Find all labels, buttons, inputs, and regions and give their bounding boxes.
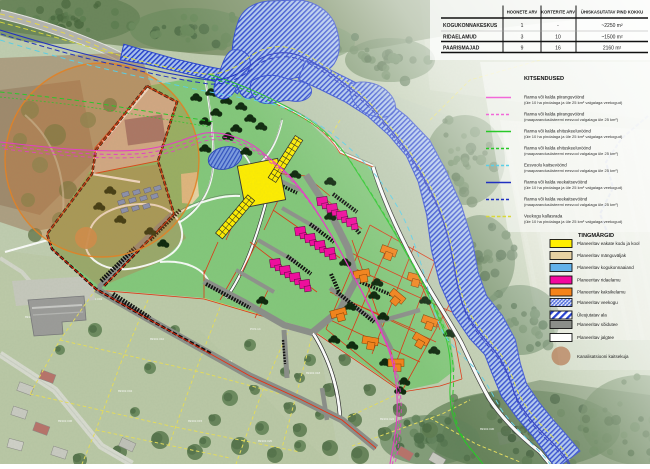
- svg-text:(üle 10 ha pindalaga ja üle 25: (üle 10 ha pindalaga ja üle 25 km² valga…: [524, 219, 623, 224]
- svg-text:(maaparandusüsteemi eesvool va: (maaparandusüsteemi eesvool valgalaga ül…: [524, 151, 619, 156]
- svg-text:3: 3: [521, 35, 524, 41]
- svg-text:Planeeritav kogukonnaaiand: Planeeritav kogukonnaaiand: [577, 265, 634, 270]
- svg-text:Planeeritav mänguväljak: Planeeritav mänguväljak: [577, 253, 627, 258]
- svg-text:(maaparandusüsteemi eesvool va: (maaparandusüsteemi eesvool valgalaga ül…: [524, 168, 619, 173]
- svg-text:Ranna või kalda piiranguvöönd: Ranna või kalda piiranguvöönd: [524, 95, 585, 100]
- svg-text:TINGMÄRGID: TINGMÄRGID: [578, 232, 614, 239]
- svg-text:Planeeritav veekogu: Planeeritav veekogu: [577, 300, 618, 305]
- svg-text:Ranna või kalda ehituskeeluvöö: Ranna või kalda ehituskeeluvöönd: [524, 129, 591, 134]
- svg-text:Ranna või kalda piiranguvöönd: Ranna või kalda piiranguvöönd: [524, 112, 585, 117]
- svg-text:Veekogu kallasrada: Veekogu kallasrada: [524, 214, 563, 219]
- svg-text:(maaparandusüsteemi eesvool va: (maaparandusüsteemi eesvool valgalaga ül…: [524, 117, 619, 122]
- svg-text:Eesvoolu kaitsevöönd: Eesvoolu kaitsevöönd: [524, 163, 567, 168]
- svg-text:Planeeritav sõidutee: Planeeritav sõidutee: [577, 322, 618, 327]
- svg-text:(üle 10 ha pindalaga ja üle 25: (üle 10 ha pindalaga ja üle 25 km² valga…: [524, 185, 623, 190]
- svg-text:~2250 m²: ~2250 m²: [601, 23, 623, 29]
- svg-text:Ranna või kalda veekaitsevöönd: Ranna või kalda veekaitsevöönd: [524, 197, 588, 202]
- svg-text:HOONETE ARV: HOONETE ARV: [507, 10, 538, 15]
- svg-text:PAARISMAJAD: PAARISMAJAD: [443, 46, 480, 52]
- svg-text:Ranna või kalda veekaitsevöönd: Ranna või kalda veekaitsevöönd: [524, 180, 588, 185]
- svg-text:RIDAELAMUD: RIDAELAMUD: [443, 35, 477, 41]
- svg-text:KITSENDUSED: KITSENDUSED: [524, 76, 564, 82]
- svg-text:1: 1: [521, 23, 524, 29]
- svg-text:(üle 10 ha pindalaga ja üle 25: (üle 10 ha pindalaga ja üle 25 km² valga…: [524, 100, 623, 105]
- svg-text:10: 10: [555, 35, 561, 41]
- svg-text:Planeeritav ridaelamu: Planeeritav ridaelamu: [577, 278, 621, 283]
- svg-text:Planeeritav jalgtee: Planeeritav jalgtee: [577, 335, 615, 340]
- svg-text:Ranna või kalda ehituskeeluvöö: Ranna või kalda ehituskeeluvöönd: [524, 146, 591, 151]
- svg-text:Kanalisatsiooni kaitsekuja: Kanalisatsiooni kaitsekuja: [577, 354, 629, 359]
- svg-text:9: 9: [521, 46, 524, 52]
- svg-text:(maaparandusüsteemi eesvool va: (maaparandusüsteemi eesvool valgalaga ül…: [524, 202, 619, 207]
- svg-text:ÜHISKASUTATAV PIND KOKKU: ÜHISKASUTATAV PIND KOKKU: [581, 10, 643, 15]
- svg-text:Üleujutatav ala: Üleujutatav ala: [577, 312, 607, 318]
- svg-text:Planeeritav kaksikelamu: Planeeritav kaksikelamu: [577, 290, 626, 295]
- svg-text:KORTERITE ARV: KORTERITE ARV: [541, 10, 575, 15]
- svg-text:~1500 m²: ~1500 m²: [601, 35, 623, 41]
- svg-text:16: 16: [555, 46, 561, 52]
- svg-text:KOGUKONNAKESKUS: KOGUKONNAKESKUS: [443, 23, 498, 29]
- svg-text:2160 m²: 2160 m²: [603, 46, 622, 52]
- svg-text:Planeeritav eakate kodu ja koo: Planeeritav eakate kodu ja kool: [577, 241, 640, 246]
- svg-text:(üle 10 ha pindalaga ja üle 25: (üle 10 ha pindalaga ja üle 25 km² valga…: [524, 134, 623, 139]
